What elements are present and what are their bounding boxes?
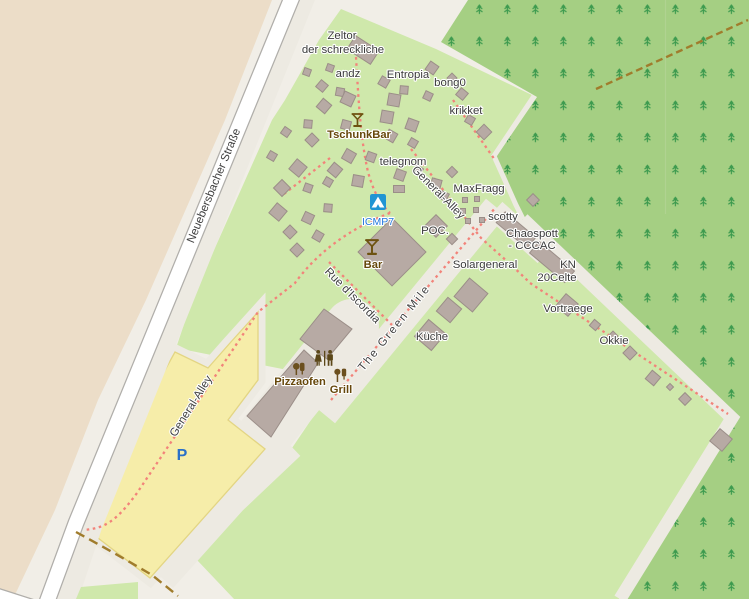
svg-text:Chaospott: Chaospott (506, 228, 559, 240)
svg-text:Entropia: Entropia (387, 69, 430, 81)
svg-text:krikket: krikket (450, 105, 484, 117)
svg-text:20Celte: 20Celte (537, 272, 576, 284)
svg-text:der schreckliche: der schreckliche (302, 44, 384, 56)
svg-text:Zeltor: Zeltor (327, 30, 356, 42)
svg-text:TschunkBar: TschunkBar (327, 129, 391, 141)
svg-text:Grill: Grill (330, 384, 352, 396)
svg-text:andz: andz (336, 68, 361, 80)
svg-text:Okkie: Okkie (599, 335, 628, 347)
svg-text:Vortraege: Vortraege (543, 303, 592, 315)
svg-text:P: P (177, 447, 188, 464)
svg-text:bong0: bong0 (434, 77, 466, 89)
svg-text:POC.: POC. (421, 225, 449, 237)
svg-text:MaxFragg: MaxFragg (453, 183, 504, 195)
svg-text:- CCCAC: - CCCAC (508, 240, 555, 252)
svg-text:Küche: Küche (416, 331, 448, 343)
svg-text:Solargeneral: Solargeneral (453, 259, 518, 271)
svg-text:scotty: scotty (488, 211, 518, 223)
svg-text:Bar: Bar (364, 259, 383, 271)
svg-text:Pizzaofen: Pizzaofen (274, 376, 326, 388)
svg-text:KN: KN (560, 259, 576, 271)
svg-text:ICMP7: ICMP7 (362, 216, 394, 228)
